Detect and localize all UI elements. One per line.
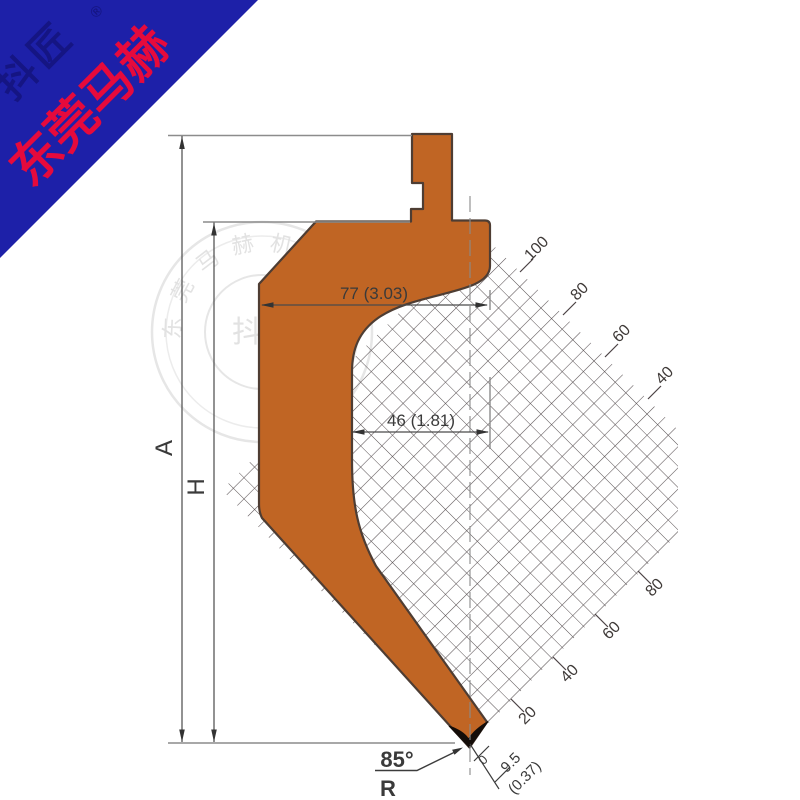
arrow-up-right-icon — [452, 748, 463, 755]
arrow-down-icon — [179, 730, 185, 743]
tip-angle-callout: 85° R — [375, 747, 463, 800]
svg-text:100: 100 — [521, 233, 552, 264]
svg-text:80: 80 — [568, 279, 593, 304]
label-tip-radius-symbol: R — [380, 776, 396, 800]
label-working-height: H — [183, 478, 210, 495]
svg-text:马: 马 — [191, 244, 224, 277]
brand-banner: 抖匠 ® 东莞马赫 — [0, 0, 258, 258]
svg-text:40: 40 — [653, 363, 678, 388]
arrow-down-icon — [211, 730, 217, 743]
press-brake-punch-drawing: 东 莞 马 赫 机 械 设 备 抖匠 ® 100 80 60 40 — [0, 0, 800, 800]
label-width-46: 46 (1.81) — [387, 411, 455, 430]
label-width-77: 77 (3.03) — [340, 284, 408, 303]
technical-drawing-canvas: 东 莞 马 赫 机 械 设 备 抖匠 ® 100 80 60 40 — [0, 0, 800, 800]
label-total-height: A — [151, 440, 178, 456]
label-scale-zero: 0 — [475, 752, 491, 768]
svg-text:赫: 赫 — [229, 230, 256, 259]
arrow-up-icon — [211, 223, 217, 236]
tip-radius-scale: 0 9.5 (0.37) — [470, 744, 545, 798]
label-tip-angle: 85° — [380, 747, 413, 772]
dimension-A: A — [151, 136, 185, 742]
arrow-up-icon — [179, 137, 185, 150]
svg-text:60: 60 — [610, 321, 635, 346]
